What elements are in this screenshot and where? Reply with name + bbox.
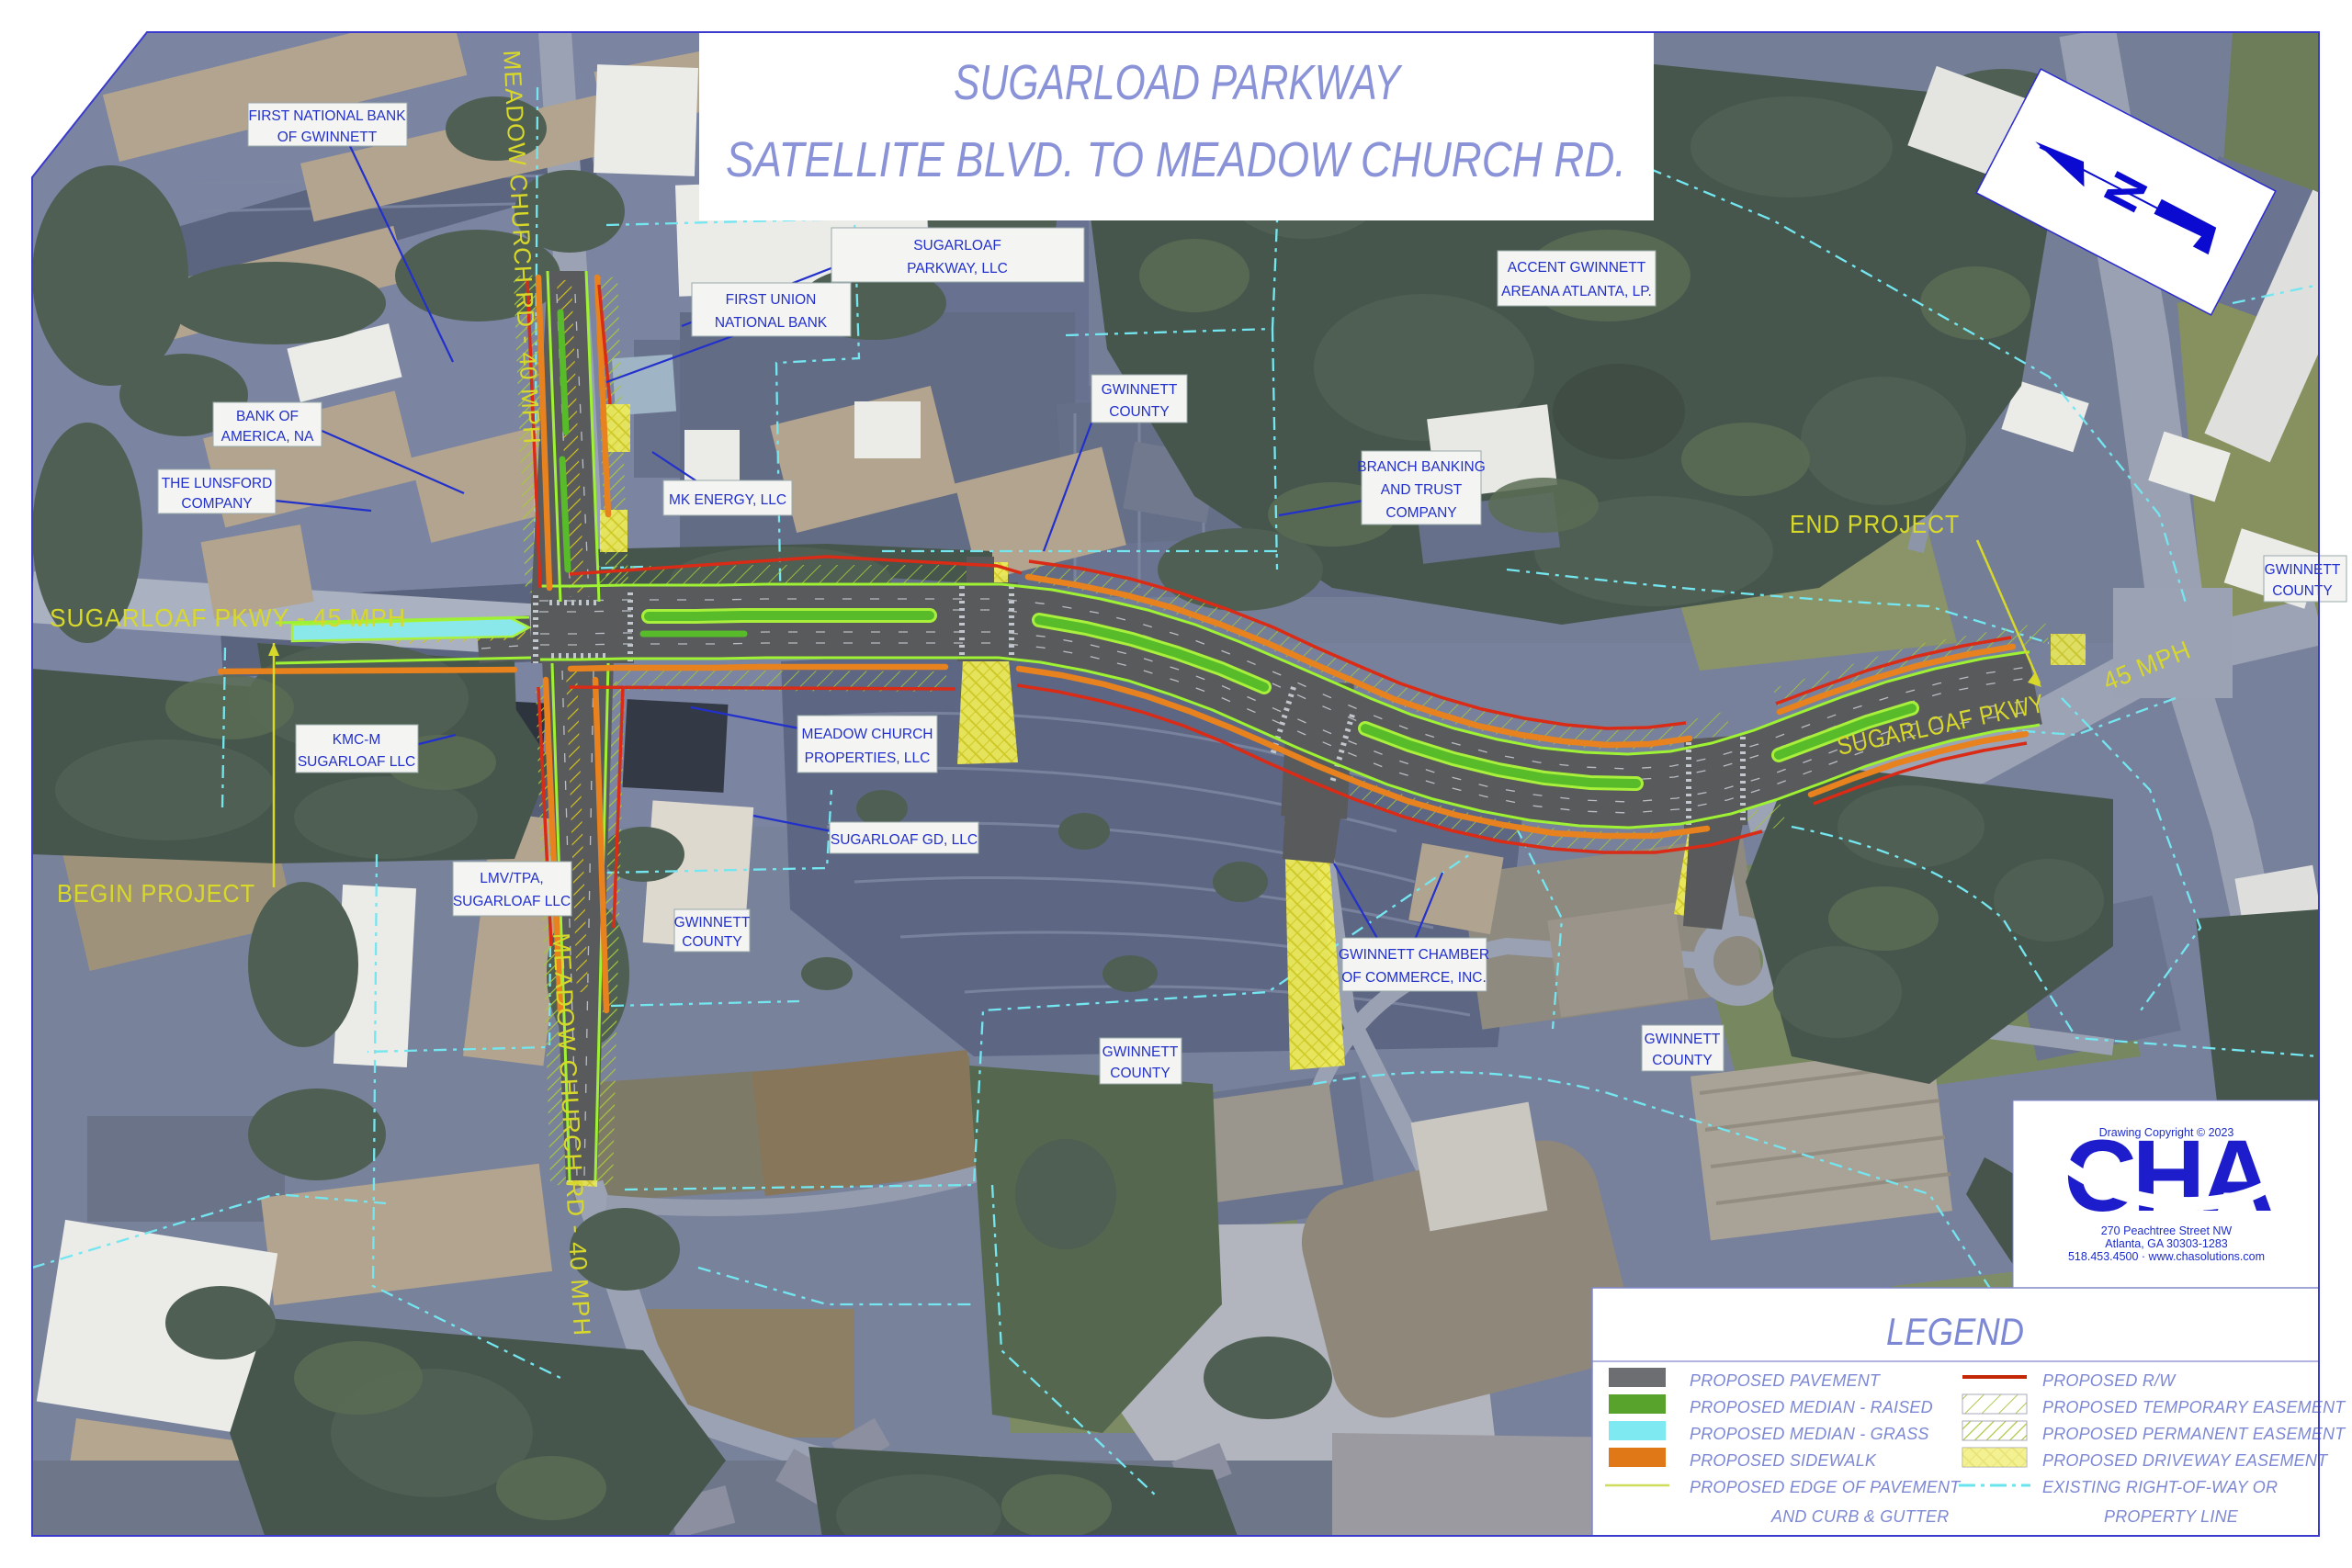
svg-text:FIRST UNION: FIRST UNION xyxy=(726,292,817,308)
svg-text:BANK OF: BANK OF xyxy=(236,409,299,424)
svg-text:GWINNETT: GWINNETT xyxy=(674,915,751,931)
svg-text:SUGARLOAF: SUGARLOAF xyxy=(913,238,1001,254)
svg-text:END PROJECT: END PROJECT xyxy=(1790,510,1960,538)
svg-text:SUGARLOAF LLC: SUGARLOAF LLC xyxy=(298,754,415,770)
svg-text:PROPERTIES, LLC: PROPERTIES, LLC xyxy=(805,750,931,766)
svg-text:COUNTY: COUNTY xyxy=(1109,404,1169,420)
svg-text:LMV/TPA,: LMV/TPA, xyxy=(480,871,543,886)
svg-text:SUGARLOAF LLC: SUGARLOAF LLC xyxy=(453,894,571,909)
svg-text:BEGIN PROJECT: BEGIN PROJECT xyxy=(57,879,255,908)
svg-text:PROPOSED R/W: PROPOSED R/W xyxy=(2042,1371,2177,1390)
svg-text:COUNTY: COUNTY xyxy=(2272,583,2332,599)
svg-text:AND TRUST: AND TRUST xyxy=(1381,482,1463,498)
svg-text:518.453.4500 · www.chasolution: 518.453.4500 · www.chasolutions.com xyxy=(2068,1250,2265,1263)
svg-text:COUNTY: COUNTY xyxy=(1110,1066,1170,1081)
svg-text:NATIONAL BANK: NATIONAL BANK xyxy=(715,315,828,331)
svg-text:GWINNETT CHAMBER: GWINNETT CHAMBER xyxy=(1339,947,1489,963)
svg-text:SUGARLOAF GD, LLC: SUGARLOAF GD, LLC xyxy=(831,832,978,848)
svg-text:SUGARLOAF PKWY - 45 MPH: SUGARLOAF PKWY - 45 MPH xyxy=(50,604,406,632)
svg-text:PROPOSED PAVEMENT: PROPOSED PAVEMENT xyxy=(1690,1371,1882,1390)
svg-text:MK ENERGY, LLC: MK ENERGY, LLC xyxy=(669,492,786,508)
svg-text:THE LUNSFORD: THE LUNSFORD xyxy=(162,476,273,491)
svg-text:EXISTING RIGHT-OF-WAY OR: EXISTING RIGHT-OF-WAY OR xyxy=(2042,1478,2278,1496)
svg-text:COUNTY: COUNTY xyxy=(1652,1053,1712,1068)
svg-text:AMERICA, NA: AMERICA, NA xyxy=(221,429,314,445)
svg-text:GWINNETT: GWINNETT xyxy=(1102,1044,1179,1060)
svg-text:PROPOSED DRIVEWAY EASEMENT: PROPOSED DRIVEWAY EASEMENT xyxy=(2042,1451,2329,1470)
svg-text:AREANA ATLANTA, LP.: AREANA ATLANTA, LP. xyxy=(1501,284,1652,299)
svg-text:SUGARLOAD PARKWAY: SUGARLOAD PARKWAY xyxy=(954,55,1403,110)
svg-text:LEGEND: LEGEND xyxy=(1886,1310,2024,1353)
svg-text:Atlanta, GA 30303-1283: Atlanta, GA 30303-1283 xyxy=(2105,1237,2227,1250)
svg-text:COMPANY: COMPANY xyxy=(1385,505,1456,521)
svg-text:KMC-M: KMC-M xyxy=(333,732,381,748)
svg-text:GWINNETT: GWINNETT xyxy=(2265,562,2341,578)
svg-text:PROPOSED EDGE OF PAVEMENT: PROPOSED EDGE OF PAVEMENT xyxy=(1690,1478,1962,1496)
svg-text:ACCENT GWINNETT: ACCENT GWINNETT xyxy=(1508,260,1646,276)
svg-text:COMPANY: COMPANY xyxy=(181,496,252,512)
svg-text:GWINNETT: GWINNETT xyxy=(1645,1032,1721,1047)
svg-text:PROPOSED MEDIAN - RAISED: PROPOSED MEDIAN - RAISED xyxy=(1690,1398,1933,1416)
svg-text:GWINNETT: GWINNETT xyxy=(1102,382,1178,398)
svg-text:OF COMMERCE, INC.: OF COMMERCE, INC. xyxy=(1341,970,1487,986)
svg-text:PROPOSED PERMANENT EASEMENT: PROPOSED PERMANENT EASEMENT xyxy=(2042,1425,2346,1443)
svg-text:FIRST NATIONAL BANK: FIRST NATIONAL BANK xyxy=(248,108,406,124)
svg-text:270 Peachtree Street NW: 270 Peachtree Street NW xyxy=(2101,1224,2233,1237)
svg-text:BRANCH BANKING: BRANCH BANKING xyxy=(1357,459,1486,475)
svg-text:MEADOW CHURCH: MEADOW CHURCH xyxy=(802,727,933,742)
svg-text:PROPOSED TEMPORARY EASEMENT: PROPOSED TEMPORARY EASEMENT xyxy=(2042,1398,2346,1416)
svg-text:PARKWAY, LLC: PARKWAY, LLC xyxy=(907,261,1008,276)
svg-text:OF GWINNETT: OF GWINNETT xyxy=(277,130,378,145)
svg-text:AND CURB & GUTTER: AND CURB & GUTTER xyxy=(1770,1507,1949,1526)
svg-text:COUNTY: COUNTY xyxy=(682,934,741,950)
svg-text:SATELLITE BLVD. TO MEADOW CHU: SATELLITE BLVD. TO MEADOW CHURCH RD. xyxy=(726,132,1626,187)
svg-text:PROPOSED SIDEWALK: PROPOSED SIDEWALK xyxy=(1690,1451,1877,1470)
svg-text:PROPERTY LINE: PROPERTY LINE xyxy=(2104,1507,2239,1526)
svg-text:PROPOSED MEDIAN - GRASS: PROPOSED MEDIAN - GRASS xyxy=(1690,1425,1929,1443)
